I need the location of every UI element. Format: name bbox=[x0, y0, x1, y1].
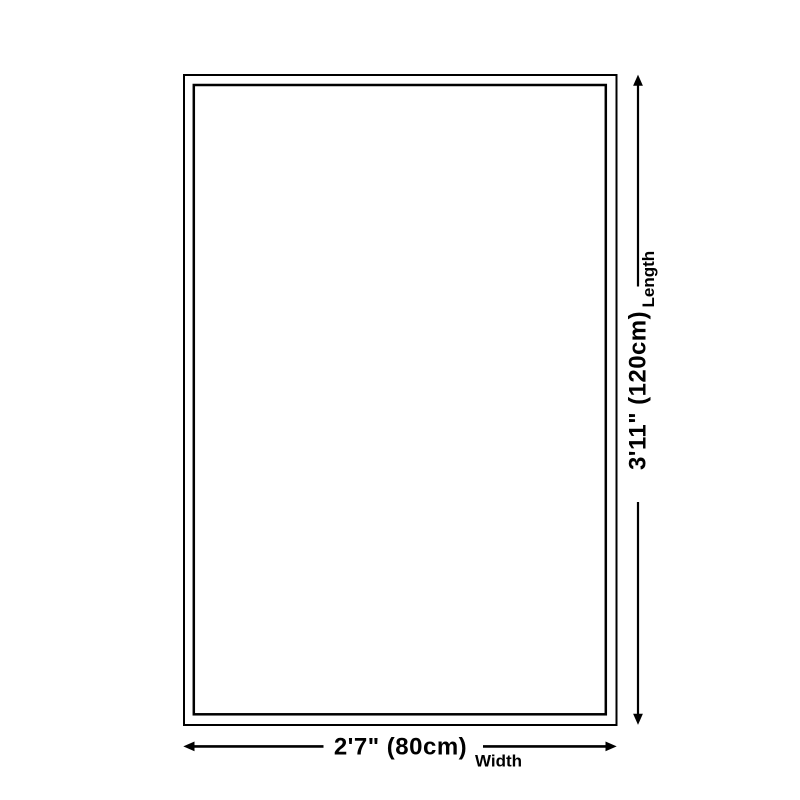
svg-text:Width: Width bbox=[475, 751, 522, 770]
svg-text:Length: Length bbox=[639, 251, 658, 308]
svg-text:2'7" (80cm): 2'7" (80cm) bbox=[334, 734, 467, 761]
svg-text:3'11" (120cm): 3'11" (120cm) bbox=[624, 311, 651, 470]
